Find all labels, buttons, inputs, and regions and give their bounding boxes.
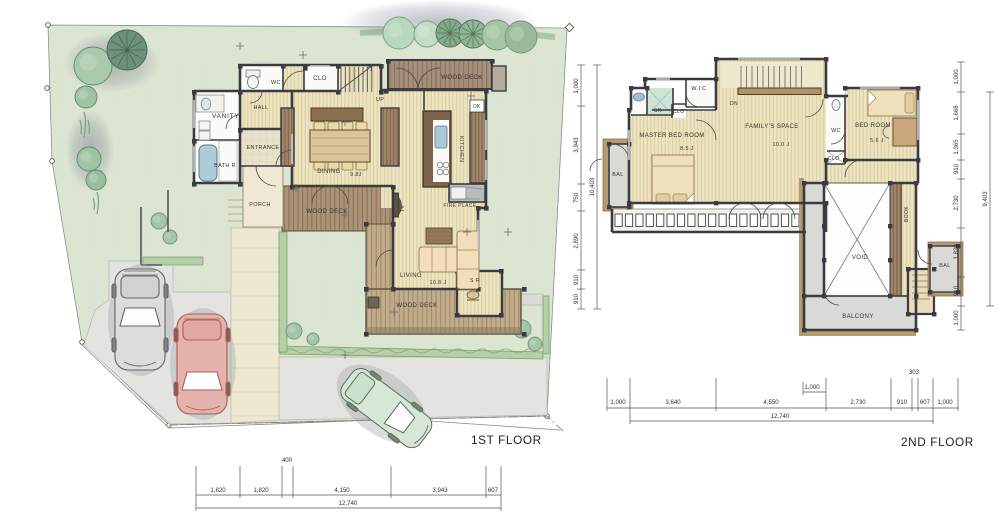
svg-text:4,150: 4,150: [334, 487, 350, 494]
svg-text:1,000: 1,000: [937, 399, 953, 406]
svg-text:FAMILY’S SPACE: FAMILY’S SPACE: [745, 124, 798, 130]
svg-text:12,740: 12,740: [771, 413, 790, 420]
svg-text:WOOD DECK: WOOD DECK: [396, 303, 437, 309]
svg-text:303: 303: [909, 369, 920, 376]
svg-text:3,943: 3,943: [573, 137, 580, 153]
svg-text:2,730: 2,730: [850, 399, 866, 406]
svg-text:1,820: 1,820: [253, 487, 269, 494]
svg-text:2,730: 2,730: [953, 195, 960, 211]
svg-text:VOID: VOID: [852, 255, 869, 261]
svg-text:BALCONY: BALCONY: [842, 314, 873, 320]
svg-text:CLO: CLO: [828, 156, 839, 162]
svg-text:2,890: 2,890: [573, 233, 580, 249]
svg-text:910: 910: [573, 293, 580, 304]
svg-text:ENTRANCE: ENTRANCE: [247, 145, 280, 151]
svg-text:1,668: 1,668: [953, 105, 960, 121]
svg-text:UP: UP: [376, 97, 384, 103]
svg-text:BOOK: BOOK: [904, 206, 910, 222]
svg-text:BATH R: BATH R: [214, 163, 236, 169]
svg-text:1,000: 1,000: [953, 310, 960, 326]
svg-text:HALL: HALL: [253, 105, 268, 111]
svg-text:2ND FLOOR: 2ND FLOOR: [901, 435, 974, 449]
svg-text:1ST FLOOR: 1ST FLOOR: [471, 433, 542, 447]
svg-text:DINING: DINING: [317, 169, 340, 175]
svg-text:WOOD DECK: WOOD DECK: [441, 75, 482, 81]
svg-text:10,403: 10,403: [589, 177, 596, 196]
svg-text:910: 910: [573, 274, 580, 285]
svg-text:CLO: CLO: [313, 76, 327, 82]
svg-text:400: 400: [282, 457, 293, 464]
svg-text:1,820: 1,820: [210, 487, 226, 494]
svg-text:1,000: 1,000: [573, 78, 580, 94]
svg-text:607: 607: [920, 399, 931, 406]
svg-text:10.0 J: 10.0 J: [772, 142, 789, 148]
svg-text:1,365: 1,365: [953, 139, 960, 155]
svg-text:910: 910: [953, 285, 960, 296]
svg-text:KITCHEN: KITCHEN: [458, 136, 464, 162]
svg-text:TV: TV: [400, 205, 406, 212]
svg-text:10.8 J: 10.8 J: [429, 280, 446, 286]
svg-text:MASTER BED ROOM: MASTER BED ROOM: [639, 133, 704, 139]
svg-text:8.5 J: 8.5 J: [680, 146, 694, 152]
svg-text:BAL: BAL: [939, 263, 950, 269]
svg-text:BAL: BAL: [612, 172, 623, 178]
svg-text:DN: DN: [730, 101, 738, 107]
svg-text:CLO: CLO: [673, 109, 684, 115]
svg-text:607: 607: [488, 487, 499, 494]
svg-text:LIVING: LIVING: [400, 273, 422, 279]
svg-text:910: 910: [897, 399, 908, 406]
svg-text:1,000: 1,000: [610, 399, 626, 406]
svg-text:W.I.C: W.I.C: [691, 86, 706, 92]
svg-text:750: 750: [573, 192, 580, 203]
svg-text:3,640: 3,640: [665, 399, 681, 406]
svg-text:PORCH: PORCH: [249, 202, 270, 208]
svg-text:1,000: 1,000: [804, 384, 820, 391]
svg-text:910: 910: [953, 163, 960, 174]
svg-text:3,943: 3,943: [432, 487, 448, 494]
svg-text:BED ROOM: BED ROOM: [855, 123, 891, 129]
svg-text:S R: S R: [470, 278, 480, 284]
svg-text:OK: OK: [473, 104, 481, 110]
svg-text:12,740: 12,740: [339, 500, 358, 507]
svg-text:1,000: 1,000: [953, 69, 960, 85]
svg-text:WC: WC: [831, 128, 841, 134]
svg-text:9.8J: 9.8J: [350, 172, 362, 178]
svg-text:4,550: 4,550: [763, 399, 779, 406]
svg-text:FIRE PLACE: FIRE PLACE: [443, 203, 476, 209]
svg-text:9,403: 9,403: [982, 191, 989, 207]
svg-text:1,820: 1,820: [953, 244, 960, 260]
svg-text:VANITY: VANITY: [212, 113, 239, 120]
svg-text:WOOD DECK: WOOD DECK: [306, 209, 347, 215]
svg-text:WC: WC: [271, 80, 281, 86]
svg-text:5.6 J: 5.6 J: [870, 138, 884, 144]
svg-text:SR: SR: [654, 108, 662, 114]
